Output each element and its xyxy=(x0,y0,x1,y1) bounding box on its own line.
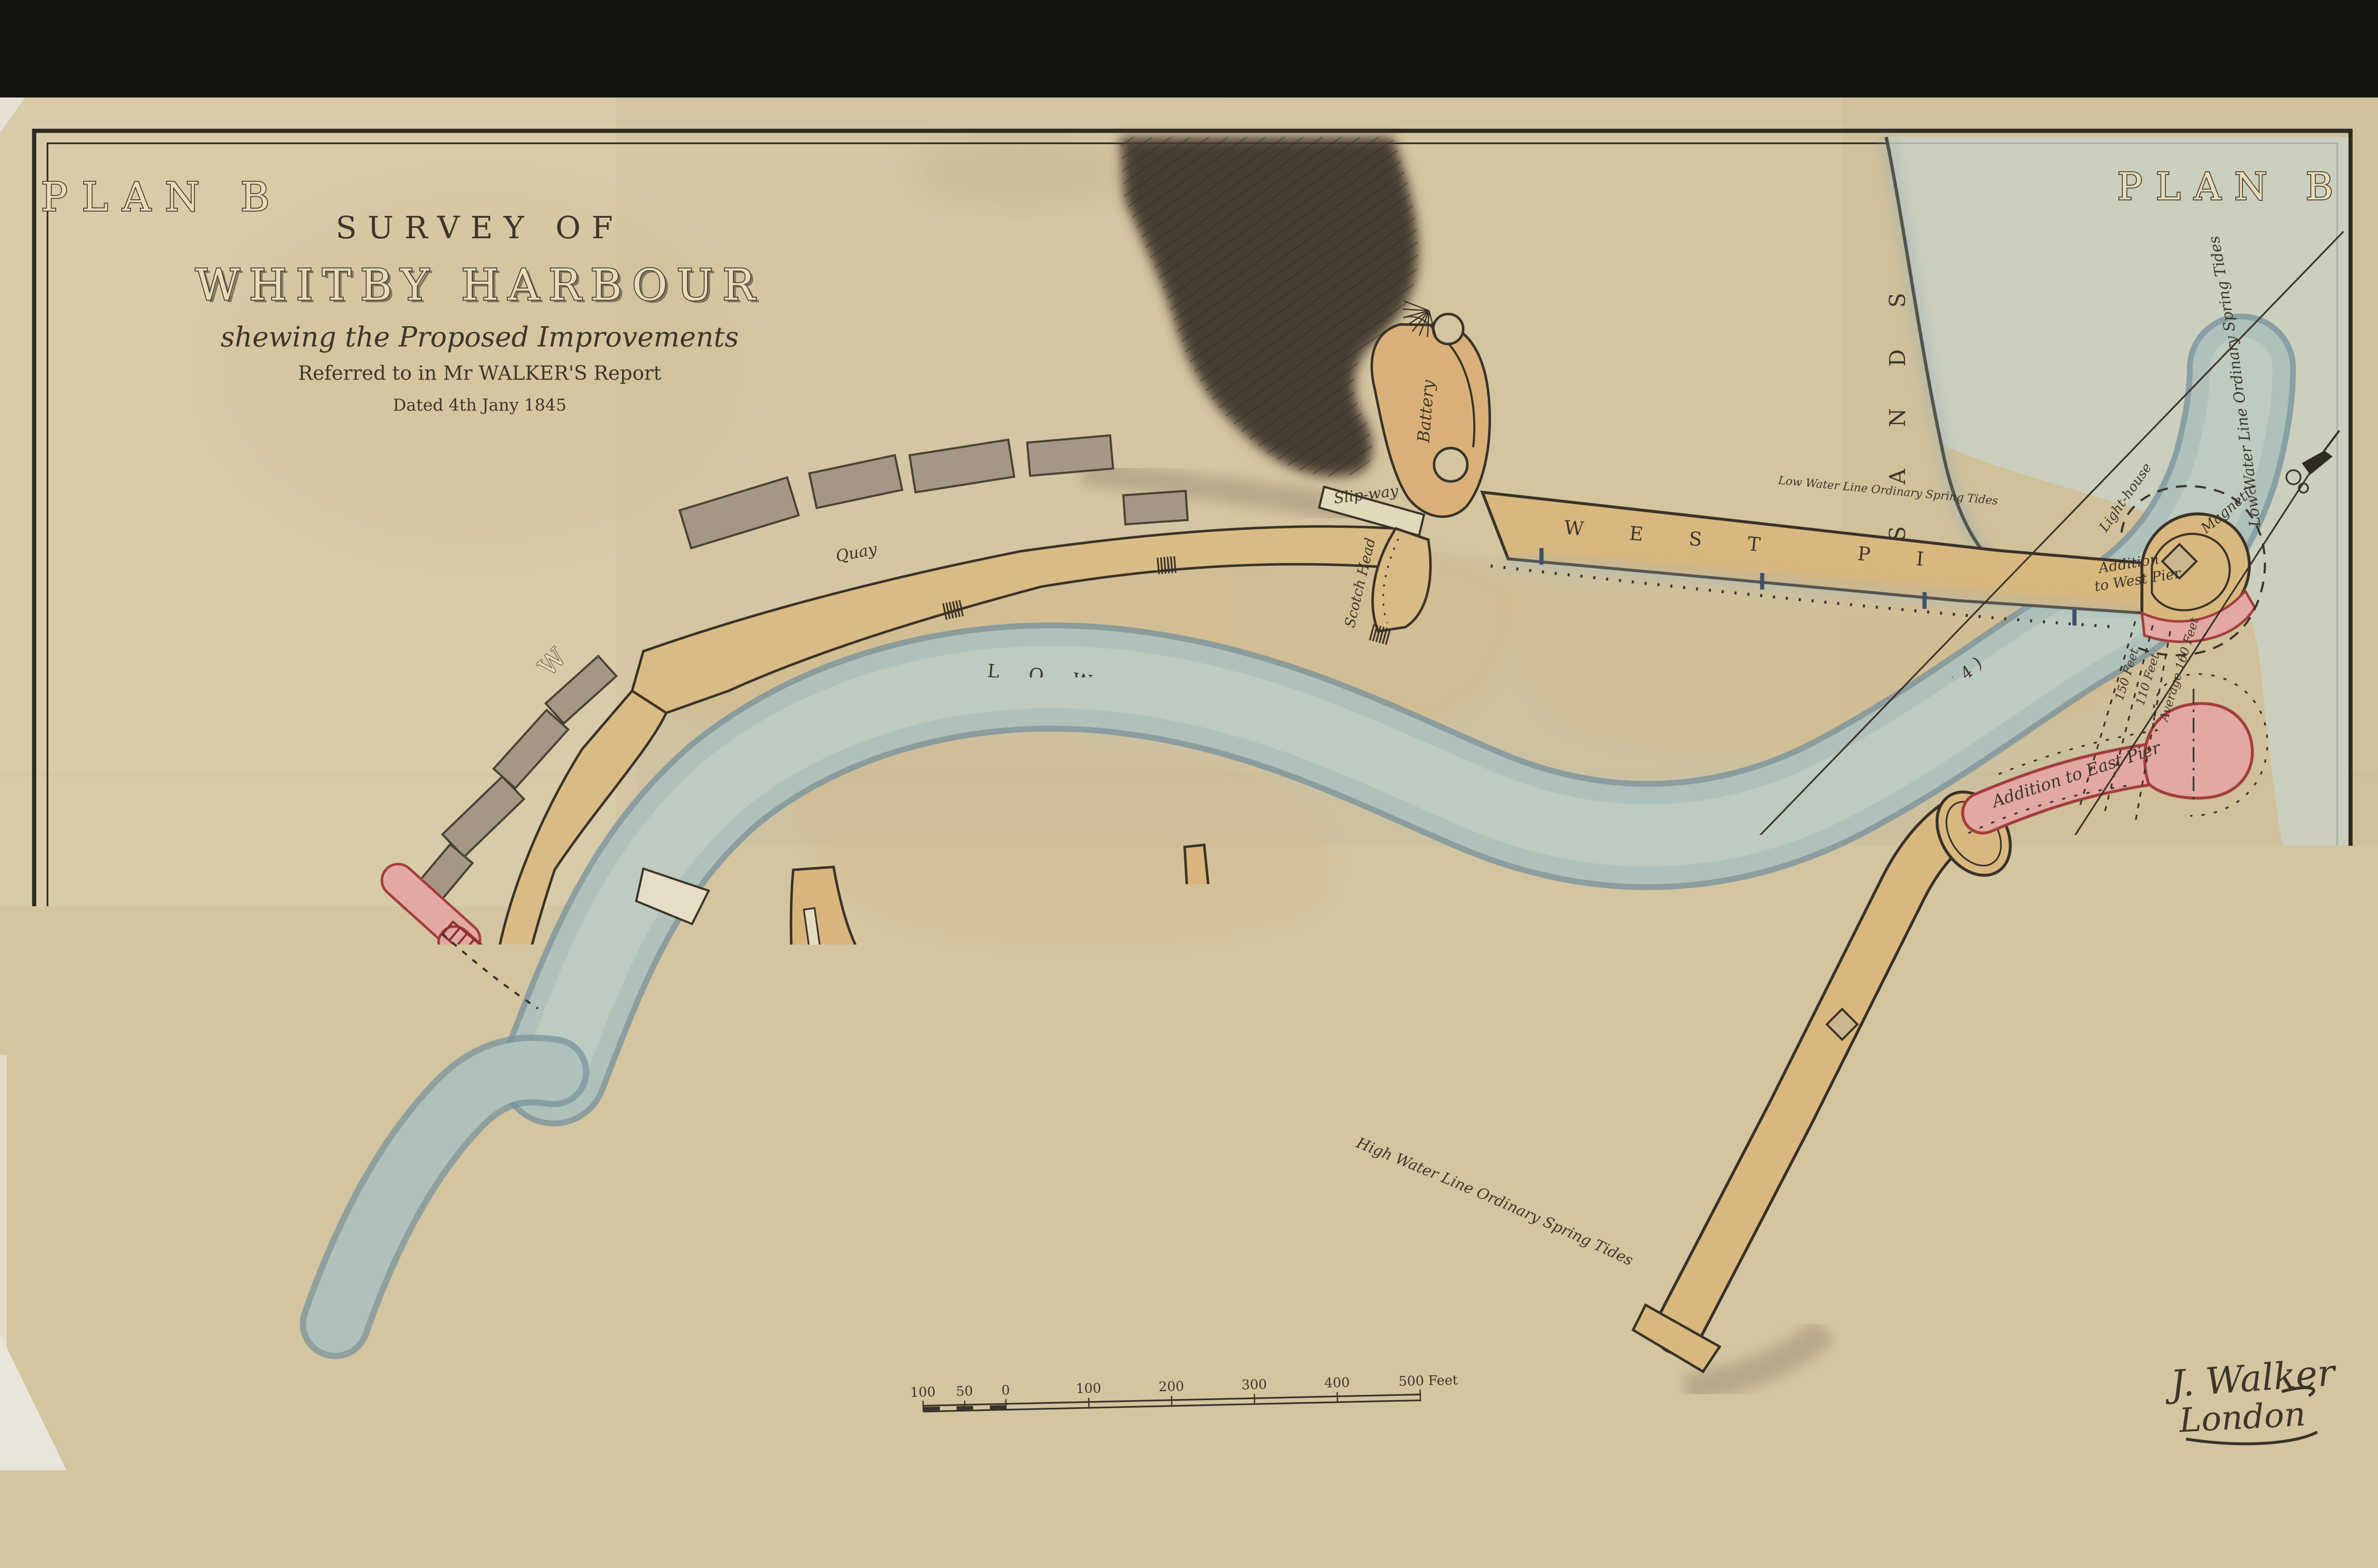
survey-map-photo: 100 50 0 100 200 300 400 500 Feet PLAN B… xyxy=(0,0,2378,1568)
scale-tick: 400 xyxy=(1324,1374,1350,1391)
scale-end-label: 500 Feet xyxy=(1398,1372,1458,1389)
whitby-harbour-plan: 100 50 0 100 200 300 400 500 Feet PLAN B… xyxy=(0,97,2378,1471)
scale-tick: 50 xyxy=(956,1383,973,1399)
scale-tick: 200 xyxy=(1159,1378,1184,1394)
scale-tick: 100 xyxy=(1076,1380,1101,1396)
title-line3: shewing the Proposed Improvements xyxy=(221,321,739,353)
title-line4: Referred to in Mr WALKER'S Report xyxy=(298,362,662,385)
outer-text: OUTER xyxy=(810,828,1200,858)
signature-place: London xyxy=(2177,1394,2307,1440)
outer-label: OUTER xyxy=(810,828,1200,858)
scale-tick: 0 xyxy=(1001,1383,1010,1398)
scale-tick: 100 xyxy=(910,1384,936,1400)
title-line1: SURVEY OF xyxy=(336,210,624,246)
scale-tick: 300 xyxy=(1241,1376,1267,1393)
plan-label-left: PLAN B xyxy=(41,174,283,220)
plan-label-right: PLAN B xyxy=(2117,165,2347,209)
title-line5: Dated 4th Jany 1845 xyxy=(393,396,566,415)
title-line2: WHITBY HARBOUR xyxy=(195,260,764,311)
